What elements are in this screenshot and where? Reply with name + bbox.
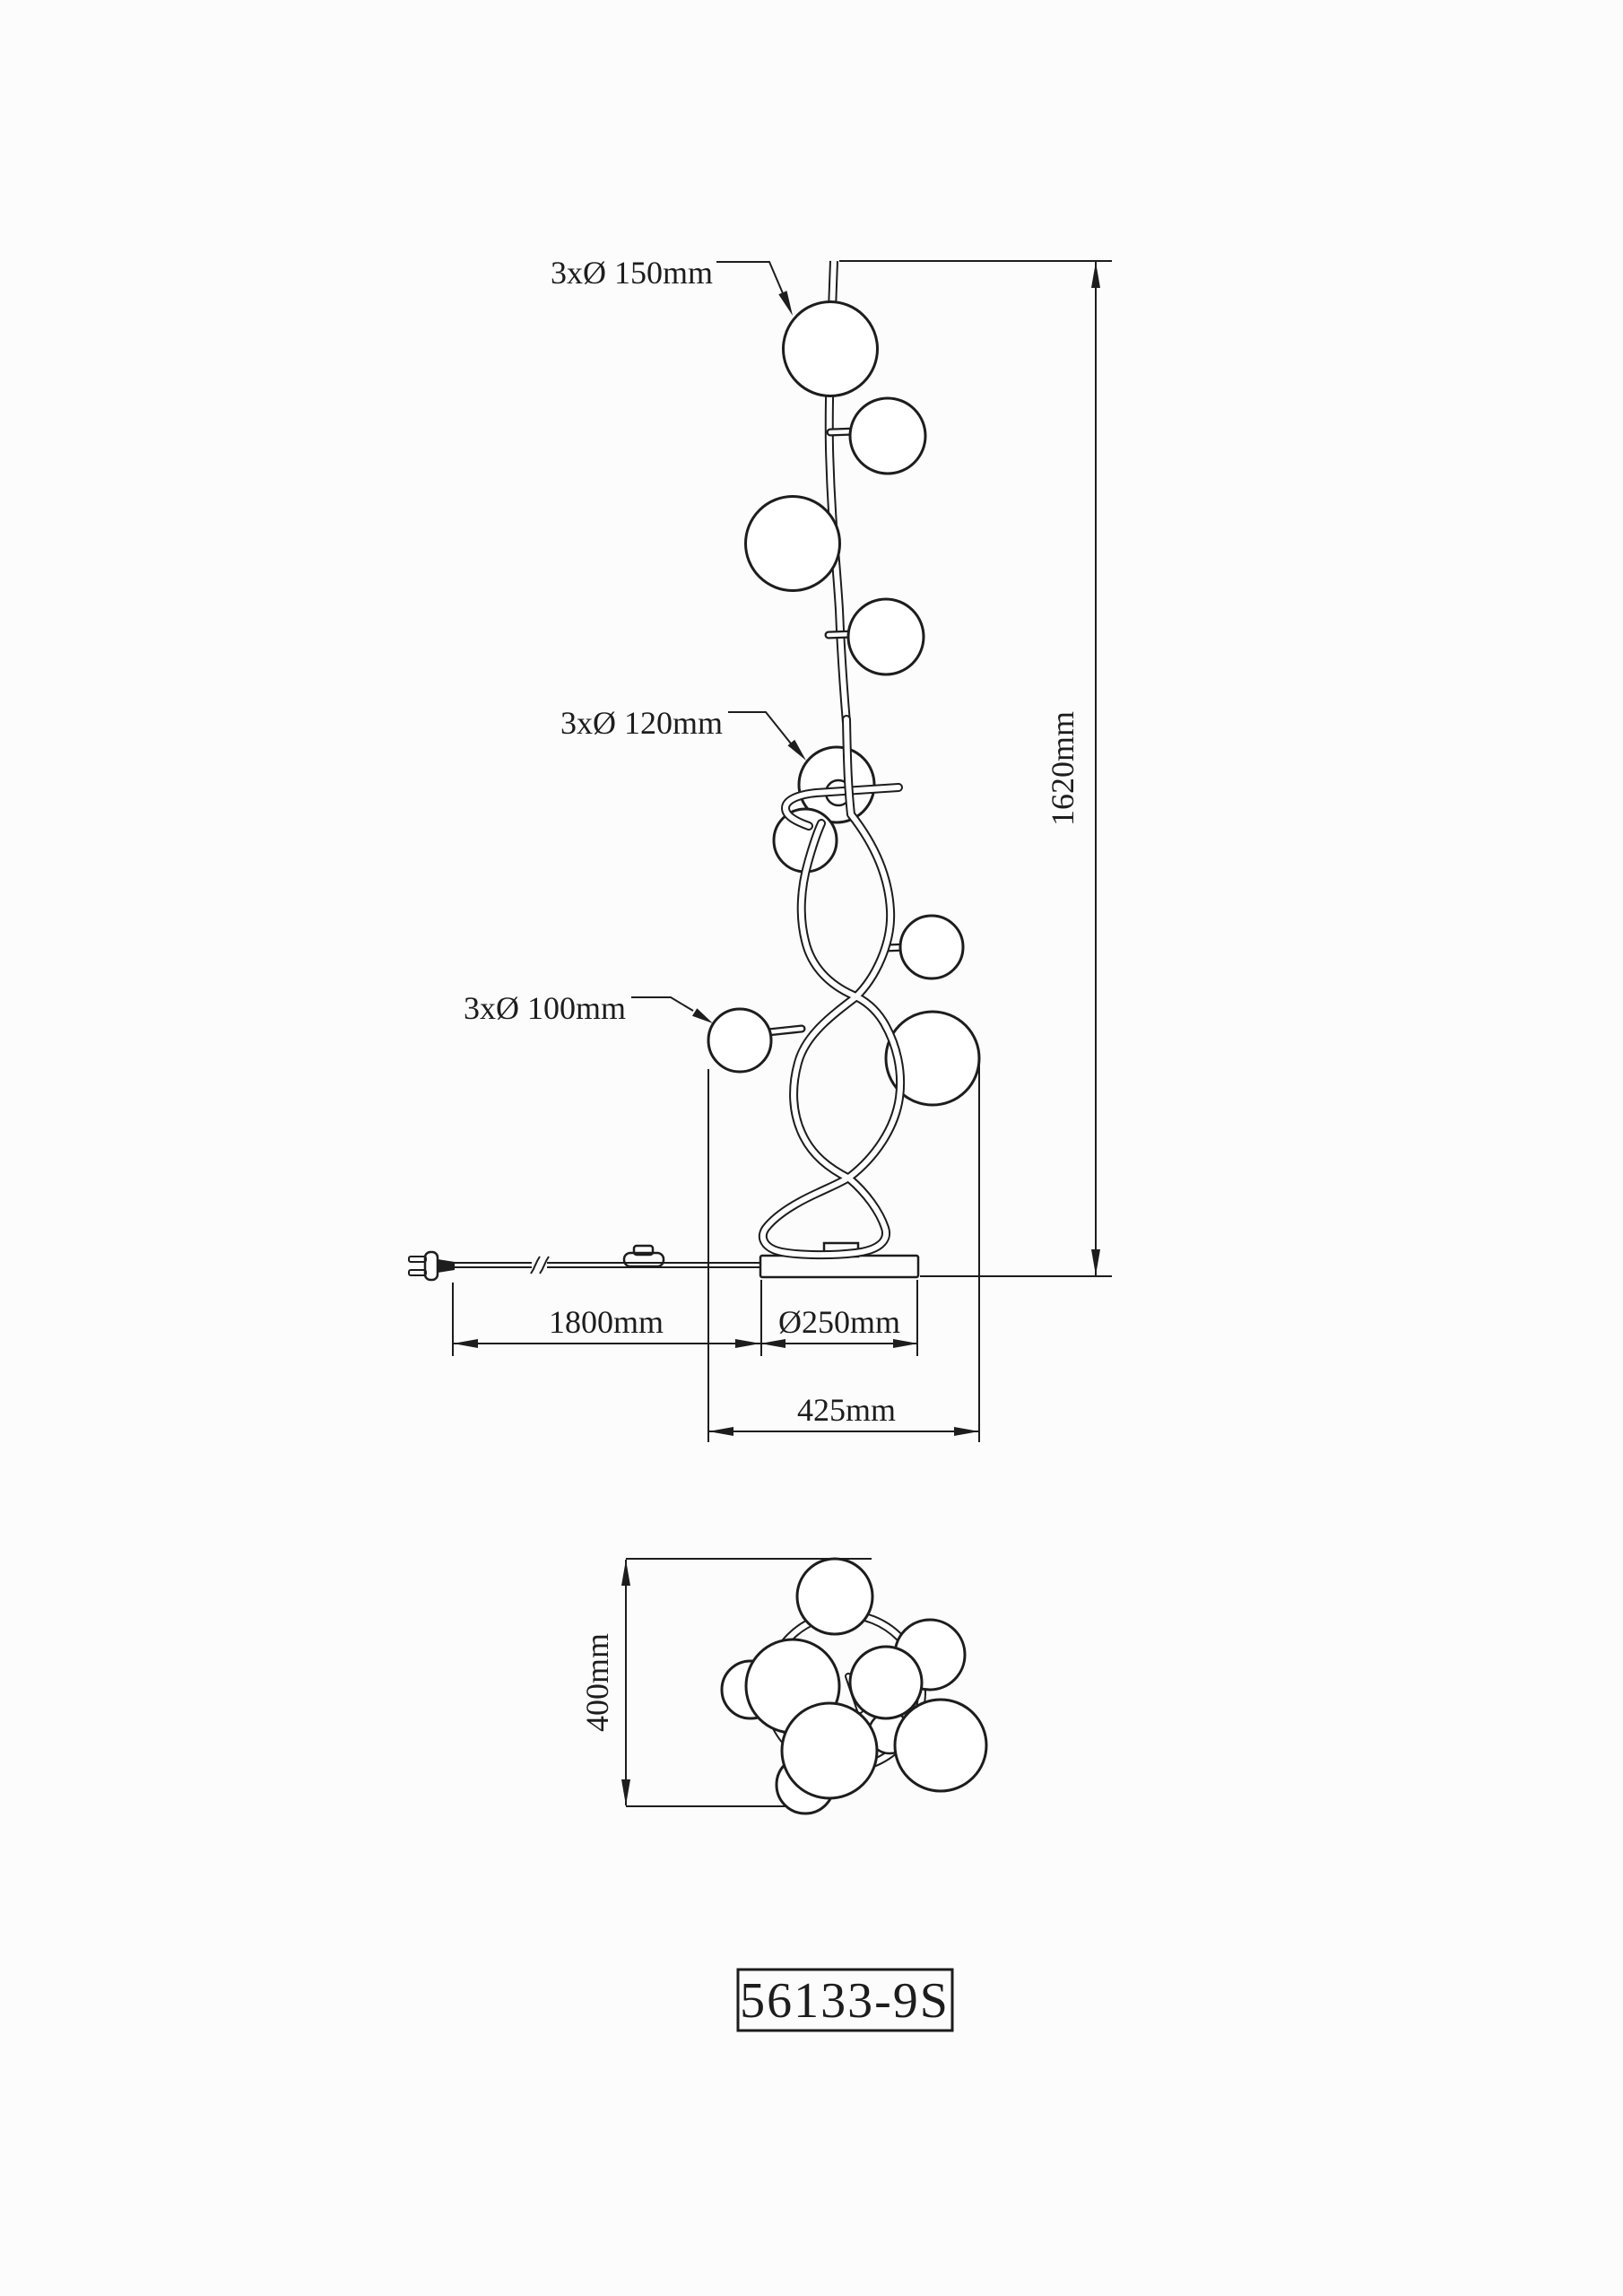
plug-neck	[438, 1259, 455, 1273]
dimension-base-250: Ø250mm	[760, 1280, 918, 1356]
globe-120	[850, 398, 925, 474]
arrow-left-icon	[453, 1339, 478, 1348]
cord-dim-label: 1800mm	[549, 1304, 664, 1340]
globe-120	[848, 599, 924, 674]
part-number: 56133-9S	[740, 1973, 950, 2029]
leader-line	[716, 262, 783, 293]
globe-150	[784, 302, 878, 396]
globes-120-label: 3xØ 120mm	[560, 705, 723, 741]
globes-100-label: 3xØ 100mm	[464, 990, 626, 1026]
globe-150	[746, 497, 840, 591]
power-plug-icon	[409, 1252, 455, 1280]
height-dim-label: 1620mm	[1045, 711, 1081, 826]
width-dim-label: 425mm	[797, 1392, 896, 1428]
dimension-cord-1800: 1800mm	[453, 1283, 760, 1356]
arrow-left-icon	[708, 1427, 733, 1436]
arrow-up-icon	[1091, 262, 1100, 288]
arrow-down-icon	[1091, 1249, 1100, 1275]
leader-globes-150: 3xØ 150mm	[551, 255, 793, 316]
plug-prong	[409, 1257, 426, 1262]
globe-100	[900, 916, 963, 978]
arrow-up-icon	[621, 1560, 630, 1586]
drawing-sheet: 1620mm 1800mm Ø250mm 425mm 3xØ 150mm 3xØ…	[0, 0, 1623, 2296]
leader-arrow-icon	[692, 1008, 713, 1023]
front-view-lamp	[409, 261, 979, 1280]
arrow-right-icon	[735, 1339, 760, 1348]
globe-top-view	[895, 1700, 986, 1791]
globe-top-view	[797, 1559, 872, 1634]
depth-dim-label: 400mm	[579, 1633, 615, 1732]
plug-prong	[409, 1270, 426, 1275]
leader-arrow-icon	[778, 291, 793, 316]
leader-line	[631, 997, 693, 1011]
globe-top-view	[782, 1703, 877, 1798]
leader-line	[728, 712, 791, 744]
globe-top-view	[850, 1647, 922, 1718]
globes-150-label: 3xØ 150mm	[551, 255, 713, 291]
leader-globes-100: 3xØ 100mm	[464, 990, 713, 1026]
plug-body	[425, 1252, 438, 1280]
arrow-left-icon	[760, 1339, 785, 1348]
arrow-down-icon	[621, 1779, 630, 1805]
base-dim-label: Ø250mm	[778, 1304, 900, 1340]
arrow-right-icon	[893, 1339, 918, 1348]
globe-100	[708, 1009, 771, 1072]
title-block: 56133-9S	[738, 1970, 952, 2031]
arrow-right-icon	[954, 1427, 979, 1436]
lamp-base	[760, 1256, 918, 1277]
top-view: 400mm	[579, 1559, 986, 1813]
technical-drawing: 1620mm 1800mm Ø250mm 425mm 3xØ 150mm 3xØ…	[0, 0, 1623, 2296]
leader-globes-120: 3xØ 120mm	[560, 705, 806, 761]
